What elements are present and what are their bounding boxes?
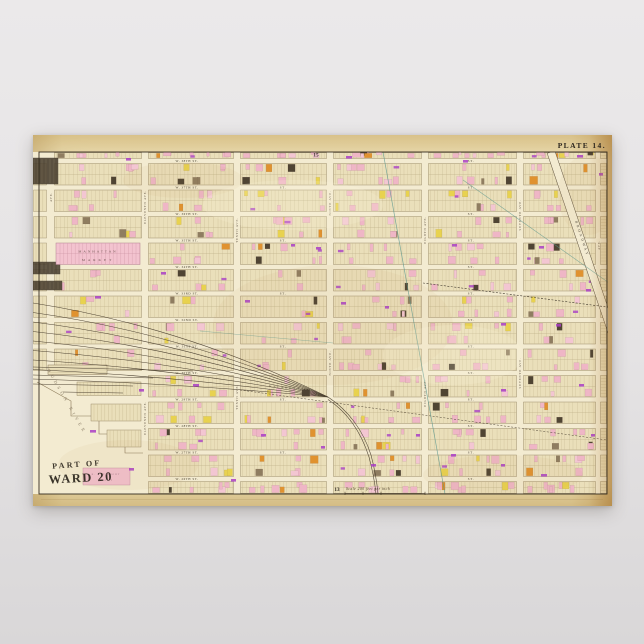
street-label: W. 36TH ST.	[176, 212, 199, 216]
avenue-label: ELEVENTH AVE.	[143, 190, 147, 224]
poster-mockup-background: W. 38TH ST.ST.W. 37TH ST.ST.ST.W. 36TH S…	[0, 0, 644, 644]
freight-depot-label-line2: DEPOT	[98, 479, 113, 482]
page-edge-tint	[589, 135, 612, 506]
street-label: W. 28TH ST.	[176, 424, 199, 428]
street-label: W. 35TH ST.	[176, 239, 199, 243]
street-label-secondary: ST.	[280, 451, 287, 455]
map-poster: W. 38TH ST.ST.W. 37TH ST.ST.ST.W. 36TH S…	[33, 135, 612, 506]
street-label-secondary: ST.	[468, 292, 475, 296]
manhattan-market-label-line1: MANHATTAN	[78, 250, 117, 254]
avenue-label: AVE.	[49, 192, 53, 202]
street-label-secondary: ST.	[468, 398, 475, 402]
street-label-secondary: ST.	[468, 159, 475, 163]
street-label-secondary: ST.	[468, 186, 475, 190]
adjoining-plate-top: 15	[313, 153, 319, 159]
street-label: W. 31ST ST.	[176, 345, 198, 349]
avenue-label: SEVENTH AVE.	[518, 199, 522, 230]
street-label-secondary: ST.	[468, 265, 475, 269]
freight-depot-label-line1: R. R. FREIGHT	[92, 473, 121, 476]
street-label-secondary: ST.	[468, 212, 475, 216]
map-generated-layers: W. 38TH ST.ST.W. 37TH ST.ST.ST.W. 36TH S…	[33, 135, 612, 506]
street-label-secondary: ST.	[468, 424, 475, 428]
scale-text: Scale 200 feet per inch	[346, 487, 390, 491]
map-field: W. 38TH ST.ST.W. 37TH ST.ST.ST.W. 36TH S…	[33, 150, 612, 495]
manhattan-market-label-line2: MARKET	[82, 258, 114, 262]
avenue-label: EIGHTH AVE.	[423, 379, 427, 407]
street-label-secondary: ST.	[468, 239, 475, 243]
street-label-secondary: ST.	[280, 239, 287, 243]
street-label: W. 32ND ST.	[175, 318, 198, 322]
street-label: W. 30TH ST.	[176, 371, 199, 375]
street-label-secondary: ST.	[468, 451, 475, 455]
street-label: W. 29TH ST.	[176, 398, 199, 402]
street-label: W. 33RD ST.	[175, 292, 198, 296]
adjoining-plate-bottom: 13	[334, 487, 340, 493]
street-label-secondary: ST.	[468, 318, 475, 322]
street-label: W. 34TH ST.	[176, 265, 199, 269]
map-svg: W. 38TH ST.ST.W. 37TH ST.ST.ST.W. 36TH S…	[33, 135, 612, 506]
avenue-label: TENTH AVE.	[235, 384, 239, 409]
plate-label: PLATE 14.	[558, 141, 606, 150]
street-label-secondary: ST.	[280, 398, 287, 402]
avenue-label: EIGHTH AVE.	[423, 216, 427, 244]
avenue-label: ELEVENTH AVE.	[143, 401, 147, 435]
